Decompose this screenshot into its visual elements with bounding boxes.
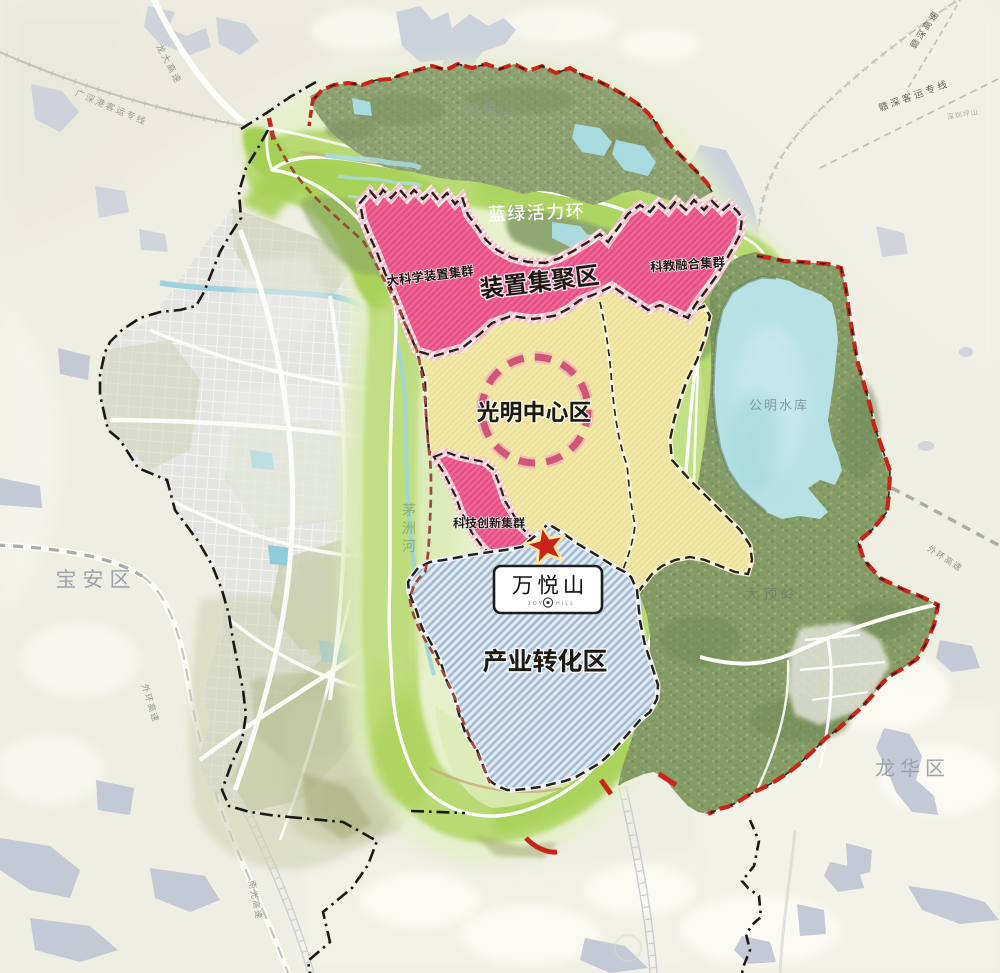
svg-text:JOY: JOY [528,601,544,607]
svg-text:HILL: HILL [556,601,575,607]
